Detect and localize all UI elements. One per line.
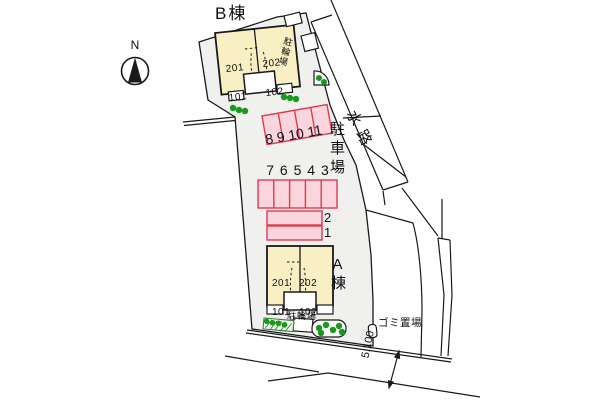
garbage-area-label: ゴミ置場 — [378, 318, 422, 329]
bicycle-parking-label-a: 駐輪場 — [287, 312, 317, 321]
parking-row-mid-numbers: 7 6 5 4 3 — [256, 163, 340, 177]
compass-n-label: N — [129, 39, 141, 51]
site-plan: N B棟 201 101 202 102 駐輪場 水路 駐車場 8 9 10 1… — [0, 0, 600, 400]
bicycle-shed-b — [301, 33, 318, 52]
parking-space-1-number: 1 — [324, 226, 331, 239]
building-b-title: B棟 — [215, 5, 247, 22]
road-south-edge-lines — [225, 356, 480, 397]
west-boundary-double-line — [183, 117, 235, 126]
parking-row-mid — [258, 180, 337, 208]
parking-space-1 — [267, 226, 322, 240]
east-fence-lines — [402, 188, 452, 356]
building-a-unit-left: 201 101 — [272, 260, 290, 336]
building-a-title: A棟 — [330, 256, 345, 292]
building-a-step-right — [317, 305, 333, 314]
site-plan-drawing — [0, 0, 600, 400]
compass-icon — [122, 58, 149, 85]
dimension-arrow — [388, 351, 399, 388]
parking-space-2-number: 2 — [324, 211, 331, 224]
parking-space-2 — [267, 211, 322, 225]
building-a-unit-right: 202 102 — [299, 260, 317, 336]
